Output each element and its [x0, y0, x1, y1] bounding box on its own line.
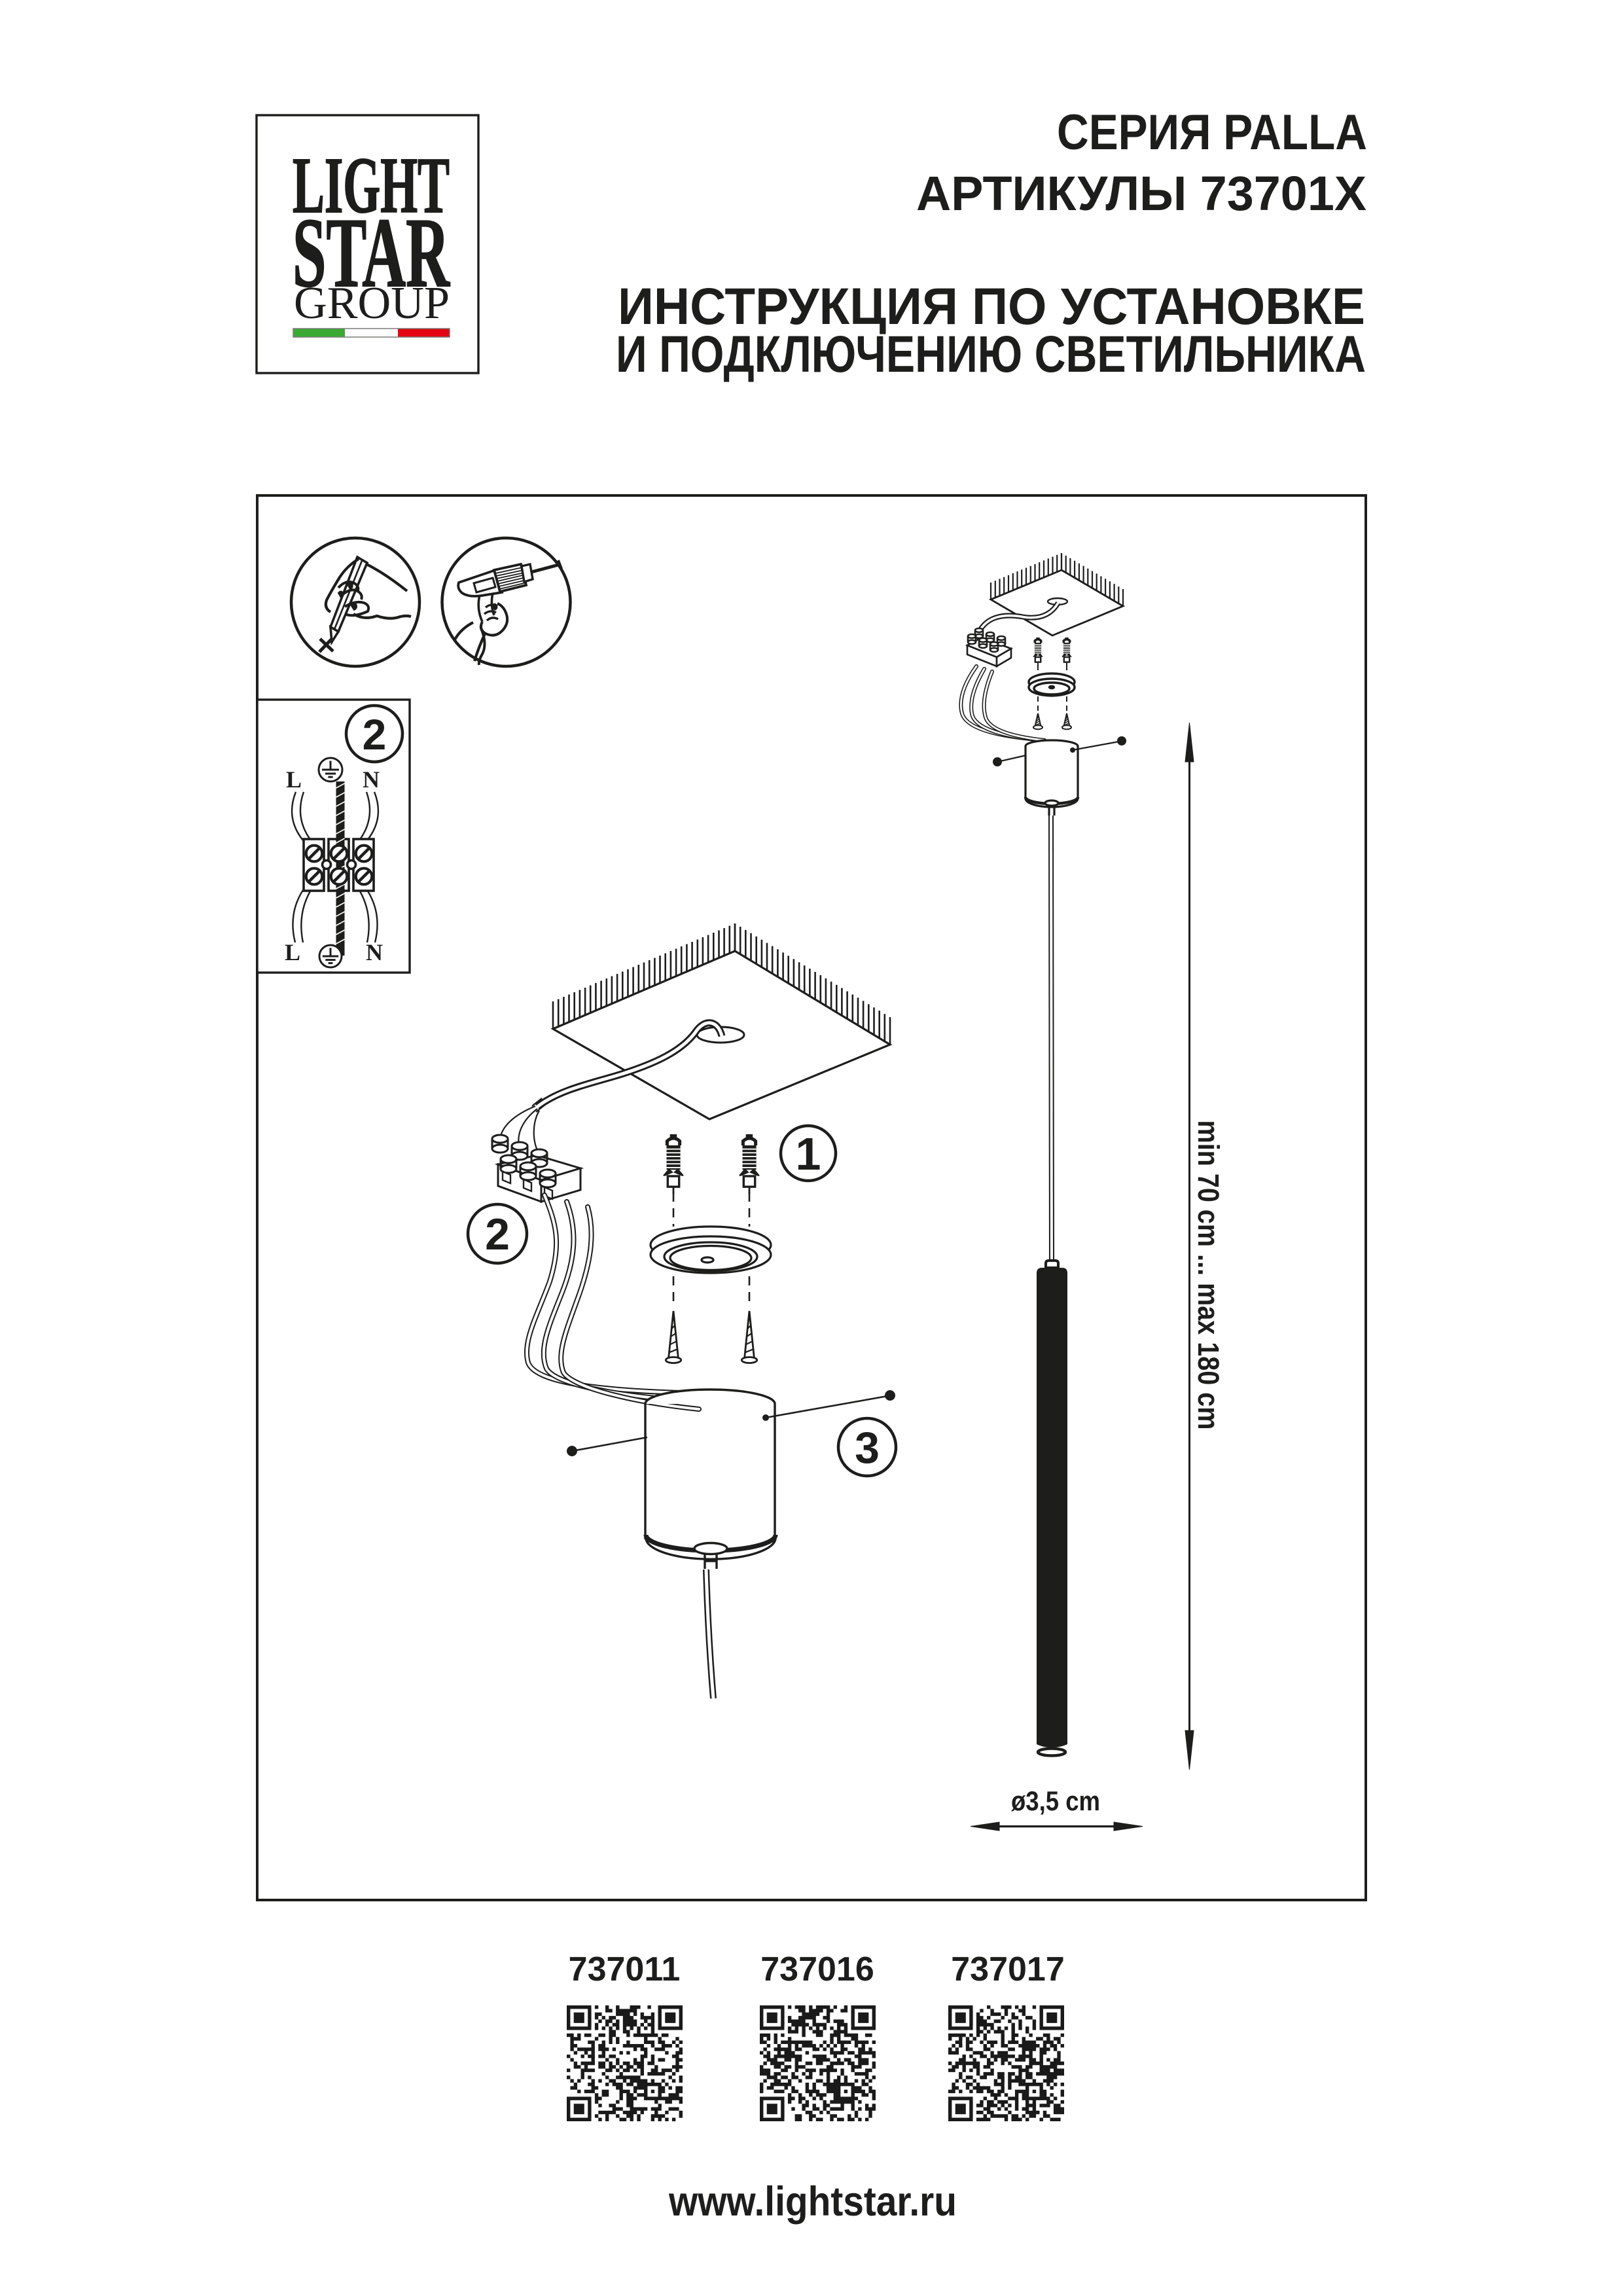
svg-text:3: 3	[855, 1423, 880, 1473]
svg-text:GROUP: GROUP	[294, 278, 450, 329]
svg-text:N: N	[366, 939, 383, 965]
svg-text:N: N	[363, 766, 380, 793]
svg-text:www.lightstar.ru: www.lightstar.ru	[668, 2179, 957, 2225]
svg-text:L: L	[286, 766, 302, 793]
svg-text:СЕРИЯ PALLA: СЕРИЯ PALLA	[1057, 105, 1367, 160]
svg-text:min 70 cm ... max 180 cm: min 70 cm ... max 180 cm	[1192, 1121, 1225, 1430]
svg-text:АРТИКУЛЫ 73701X: АРТИКУЛЫ 73701X	[916, 166, 1366, 221]
svg-text:L: L	[285, 939, 300, 965]
svg-text:737017: 737017	[951, 1950, 1065, 1988]
svg-text:1: 1	[796, 1128, 821, 1179]
svg-text:2: 2	[485, 1210, 510, 1259]
svg-text:737016: 737016	[760, 1950, 874, 1988]
svg-text:737011: 737011	[569, 1950, 681, 1988]
svg-text:ø3,5 cm: ø3,5 cm	[1011, 1785, 1100, 1816]
svg-text:2: 2	[363, 710, 387, 759]
svg-text:И ПОДКЛЮЧЕНИЮ СВЕТИЛЬНИКА: И ПОДКЛЮЧЕНИЮ СВЕТИЛЬНИКА	[616, 325, 1366, 383]
